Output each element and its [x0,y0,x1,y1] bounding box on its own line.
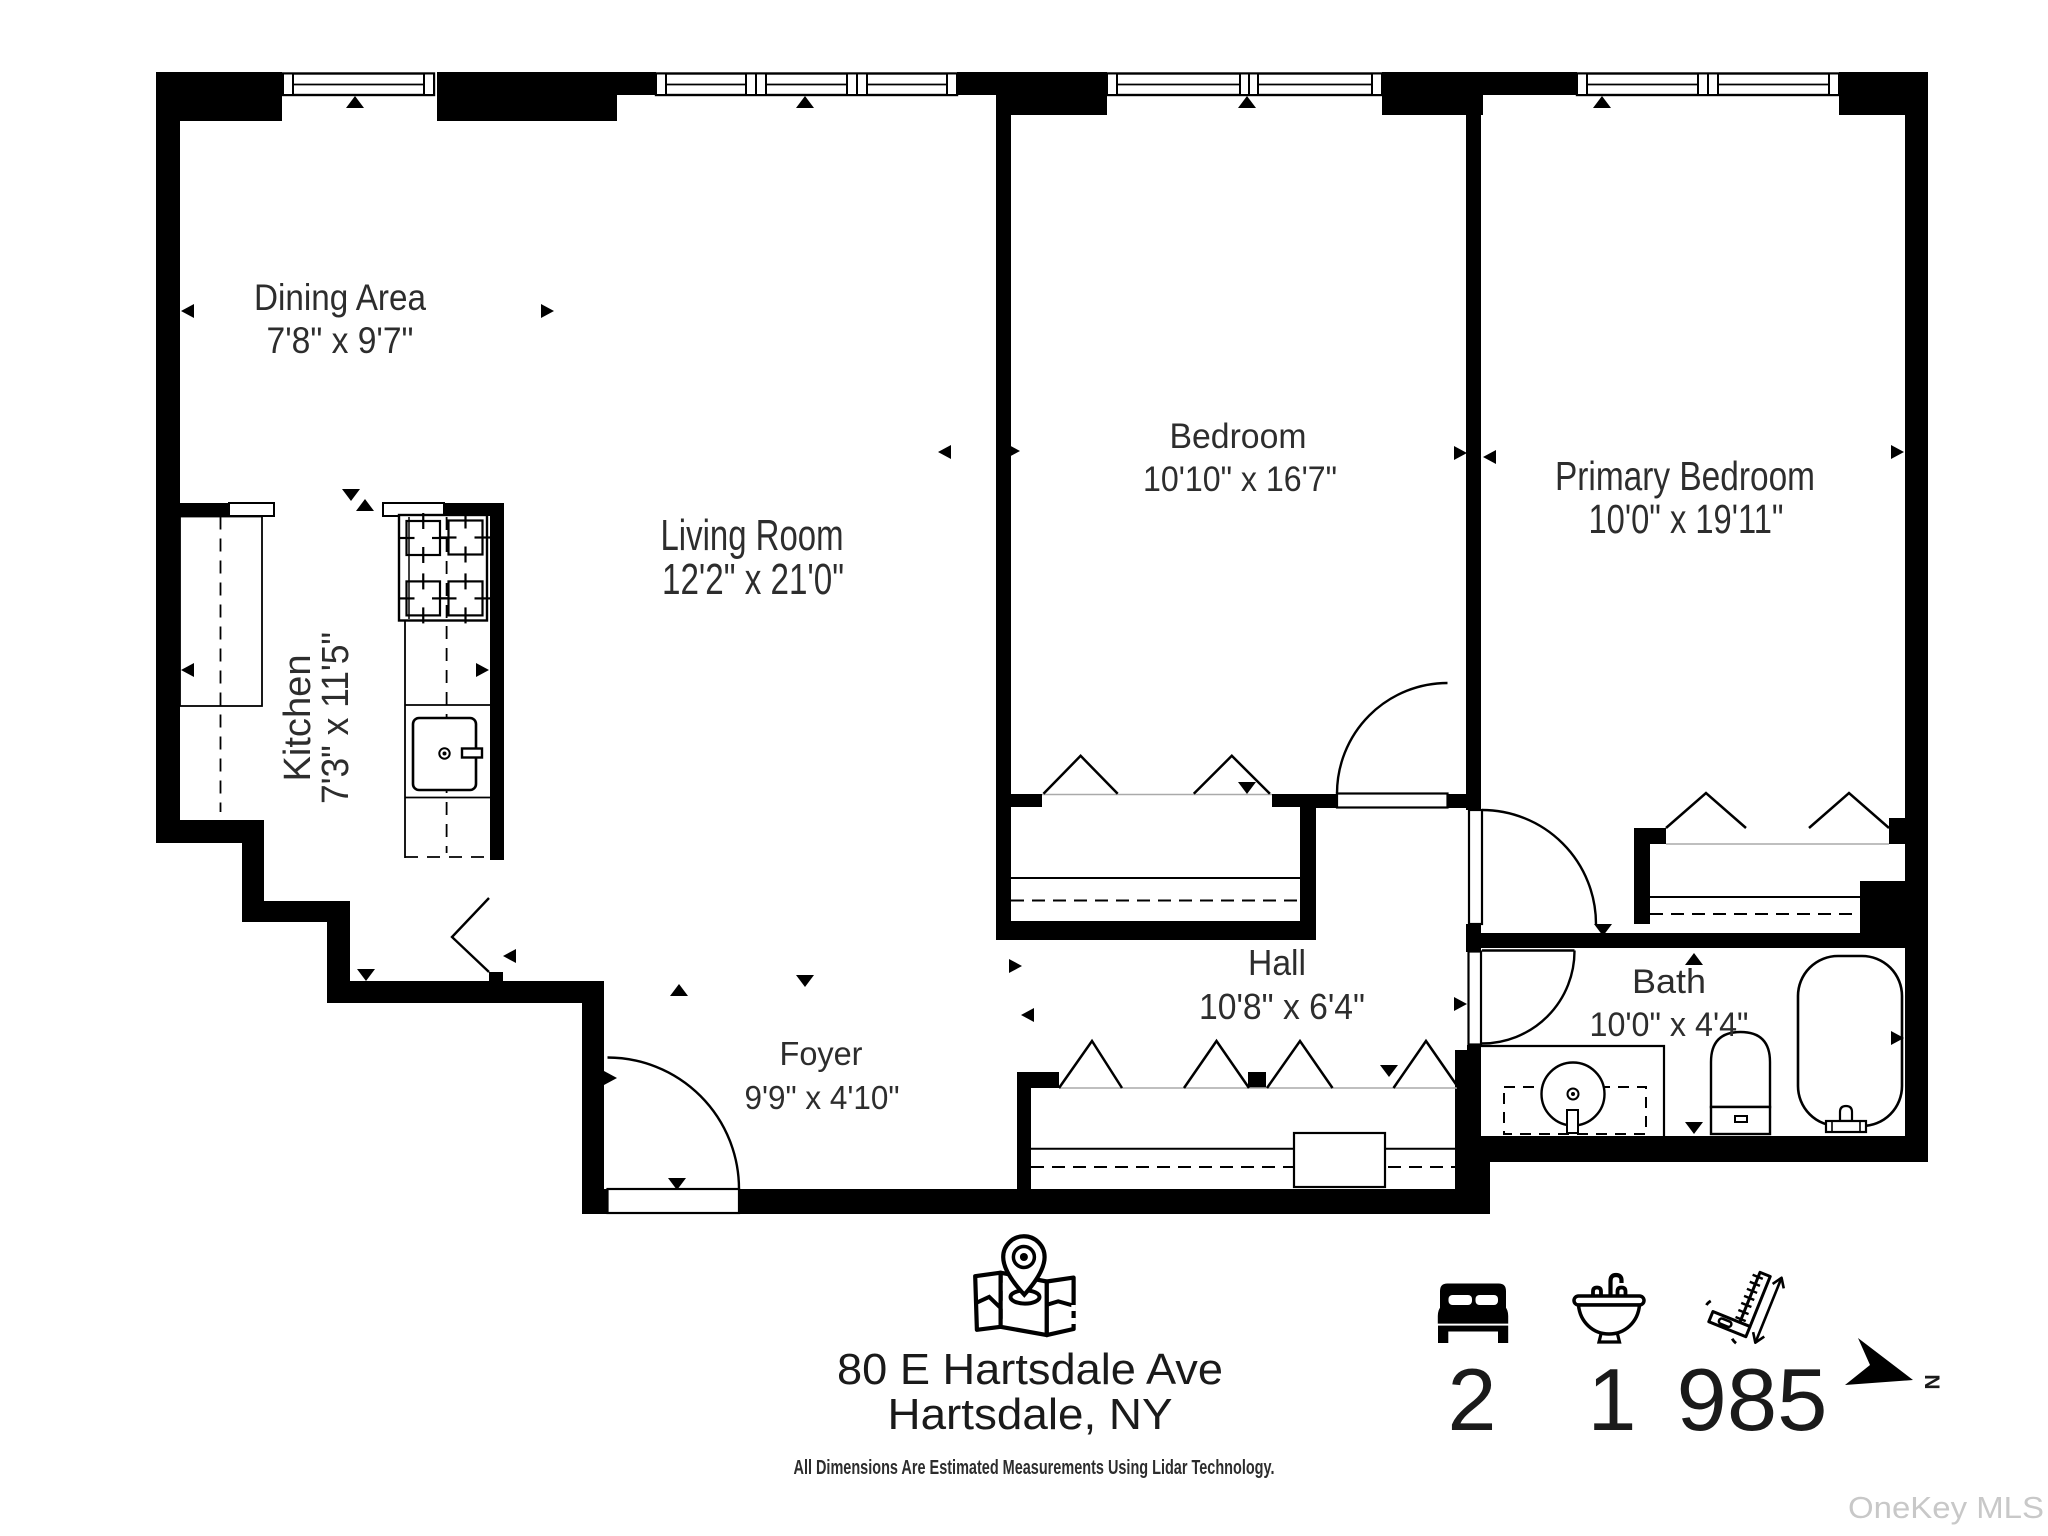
svg-text:Kitchen: Kitchen [277,655,319,782]
svg-text:All Dimensions Are Estimated M: All Dimensions Are Estimated Measurement… [794,1457,1275,1479]
svg-text:10'10" x 16'7": 10'10" x 16'7" [1143,460,1337,499]
svg-text:2: 2 [1448,1350,1497,1449]
svg-text:10'0" x 4'4": 10'0" x 4'4" [1590,1006,1749,1044]
svg-text:OneKey MLS: OneKey MLS [1848,1490,2044,1525]
svg-text:12'2" x 21'0": 12'2" x 21'0" [662,555,844,604]
svg-text:Primary Bedroom: Primary Bedroom [1555,453,1815,499]
svg-text:Bath: Bath [1632,963,1706,1001]
svg-text:7'3" x 11'5": 7'3" x 11'5" [315,632,357,804]
svg-text:7'8" x 9'7": 7'8" x 9'7" [267,320,414,361]
svg-text:Dining Area: Dining Area [254,277,426,318]
svg-text:9'9" x 4'10": 9'9" x 4'10" [745,1079,900,1116]
svg-text:1: 1 [1588,1350,1637,1449]
svg-text:Hartsdale, NY: Hartsdale, NY [888,1390,1173,1439]
svg-text:Hall: Hall [1248,942,1306,983]
svg-text:10'0" x 19'11": 10'0" x 19'11" [1589,496,1784,542]
svg-text:80 E Hartsdale Ave: 80 E Hartsdale Ave [837,1345,1223,1394]
svg-text:Bedroom: Bedroom [1170,417,1307,456]
svg-text:N: N [1920,1374,1943,1389]
svg-text:985: 985 [1677,1350,1828,1449]
svg-text:Foyer: Foyer [780,1035,863,1072]
svg-text:10'8" x 6'4": 10'8" x 6'4" [1199,986,1365,1027]
svg-text:Living Room: Living Room [661,511,844,560]
